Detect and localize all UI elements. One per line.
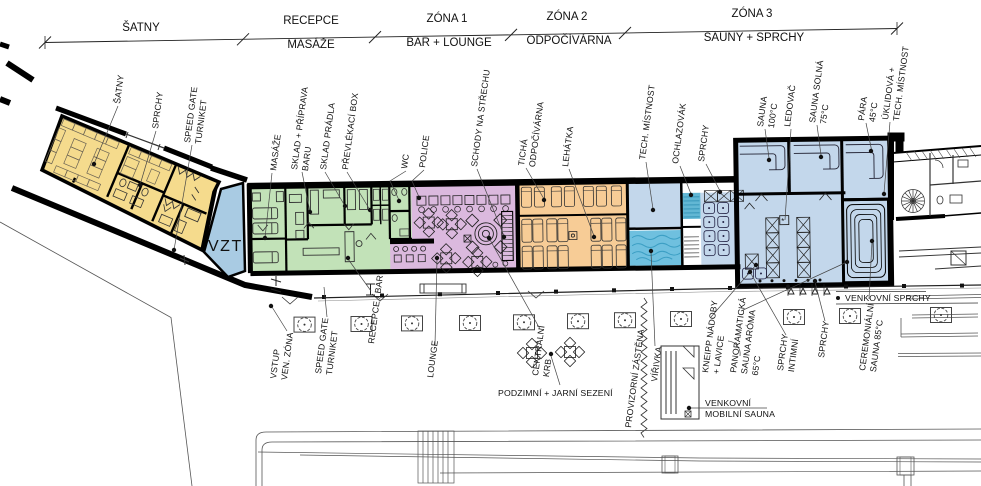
svg-text:SAUNY + SPRCHY: SAUNY + SPRCHY <box>704 32 805 44</box>
svg-text:SCHODY NA STŘECHU: SCHODY NA STŘECHU <box>469 69 492 167</box>
svg-text:SPRCHY: SPRCHY <box>696 124 711 162</box>
svg-text:PODZIMNÍ + JARNÍ SEZENÍ: PODZIMNÍ + JARNÍ SEZENÍ <box>498 388 613 398</box>
svg-text:VZT: VZT <box>208 238 243 255</box>
svg-text:MASÁŽE: MASÁŽE <box>268 134 283 172</box>
svg-text:POLICE: POLICE <box>417 134 431 168</box>
svg-text:RECEPCE: RECEPCE <box>283 15 339 27</box>
svg-text:PŘEVLÉKACÍ BOX: PŘEVLÉKACÍ BOX <box>340 92 360 170</box>
svg-text:ŠATNY: ŠATNY <box>112 74 126 104</box>
svg-text:VENKOVNÍ: VENKOVNÍ <box>705 398 752 408</box>
svg-text:LOUNGE: LOUNGE <box>425 340 440 379</box>
svg-text:65°C: 65°C <box>750 355 763 376</box>
svg-text:OCHLAZOVÁK: OCHLAZOVÁK <box>670 103 688 165</box>
svg-text:100°C: 100°C <box>766 103 779 129</box>
svg-text:ZÓNA 1: ZÓNA 1 <box>427 12 468 25</box>
svg-text:SPRCHY: SPRCHY <box>150 91 165 129</box>
svg-text:PROVIZORNÍ ZÁSTĚNA: PROVIZORNÍ ZÁSTĚNA <box>623 329 646 429</box>
svg-text:LEHÁTKA: LEHÁTKA <box>560 126 575 168</box>
svg-text:ODPOČÍVÁRNA: ODPOČÍVÁRNA <box>527 34 612 47</box>
svg-text:ODPOČÍVÁRNA: ODPOČÍVÁRNA <box>527 101 546 168</box>
svg-text:RECEPCE / BAR: RECEPCE / BAR <box>366 274 385 344</box>
svg-text:SPRCHY: SPRCHY <box>816 320 831 358</box>
svg-text:BARU: BARU <box>300 146 313 172</box>
svg-text:*: * <box>781 217 784 226</box>
svg-text:MOBILNÍ SAUNA: MOBILNÍ SAUNA <box>705 409 775 419</box>
svg-text:75°C: 75°C <box>818 104 831 125</box>
svg-text:45°C: 45°C <box>867 102 880 123</box>
svg-text:KRB: KRB <box>541 358 553 378</box>
svg-text:ŠATNY: ŠATNY <box>122 21 160 34</box>
svg-text:SKLAD PRÁDLA: SKLAD PRÁDLA <box>318 102 337 170</box>
svg-text:TECH. MÍSTNOST: TECH. MÍSTNOST <box>637 84 657 161</box>
svg-text:VEN. ZÓNA: VEN. ZÓNA <box>279 332 295 381</box>
svg-text:ZÓNA 2: ZÓNA 2 <box>547 10 588 23</box>
svg-text:LEDOVAČ: LEDOVAČ <box>782 84 797 127</box>
svg-text:WC: WC <box>399 153 411 169</box>
svg-text:VENKOVNÍ SPRCHY: VENKOVNÍ SPRCHY <box>845 293 931 303</box>
svg-text:BAR + LOUNGE: BAR + LOUNGE <box>406 37 492 49</box>
svg-text:MASÁŽE: MASÁŽE <box>287 38 335 51</box>
svg-text:ZÓNA 3: ZÓNA 3 <box>732 7 773 20</box>
